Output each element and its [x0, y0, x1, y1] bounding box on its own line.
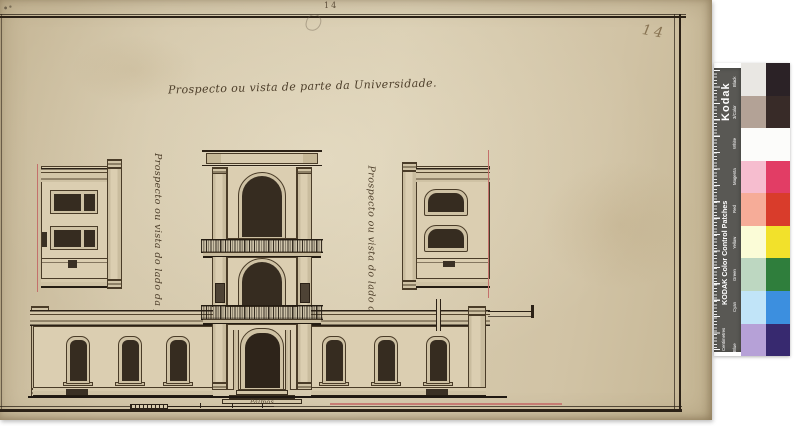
patch-full — [766, 63, 791, 96]
scale-label: Palmos — [250, 399, 274, 406]
red-ground-line — [330, 403, 562, 405]
right-wing-window — [426, 336, 450, 384]
patch-full — [766, 161, 791, 194]
window-pane — [70, 340, 87, 381]
scanned-sheet: 14 14 Prospecto ou vista de parte da Uni… — [0, 0, 800, 426]
patch-row-label: Black — [733, 68, 741, 96]
tower-upper-arched-window — [238, 172, 286, 239]
right-wing-cornice — [311, 310, 490, 326]
lower-balcony-railing — [201, 305, 323, 320]
patch-tint — [741, 63, 766, 96]
patch-row-label: White — [733, 128, 741, 160]
tower-middle-arched-window — [238, 258, 286, 307]
right-wing-window — [374, 336, 398, 384]
right-elevation-caption: Prospecto ou vista do lado do Sul. — [366, 166, 377, 296]
left-wing-window — [166, 336, 190, 384]
window-pane — [430, 340, 447, 381]
left-wing-cornice — [30, 310, 213, 326]
window-pane — [428, 229, 464, 248]
scale-bar-hatched-segment — [130, 404, 168, 410]
left-section-window — [50, 190, 98, 214]
patch-row-cyan — [741, 291, 790, 324]
door-side-trim — [285, 330, 291, 390]
patch-row-white — [741, 128, 790, 161]
tower-cornice-bottom-line — [202, 165, 322, 166]
kodak-color-strip: Kodak KODAK Color Control Patches Centim… — [714, 63, 790, 356]
right-wing-basement-vent — [426, 389, 448, 395]
patch-full — [766, 226, 791, 259]
window-pane — [84, 194, 95, 211]
tower-entrance-door — [240, 328, 284, 390]
left-section-cornice — [41, 168, 113, 182]
pilaster-base — [402, 280, 417, 290]
left-section-pilaster — [107, 159, 122, 289]
left-elevation-caption: Prospecto ou vista do lado da fachada. — [152, 153, 163, 288]
pilaster-base — [297, 382, 312, 390]
window-pane — [242, 176, 282, 237]
tower-pilaster — [297, 324, 312, 390]
patch-tint — [741, 96, 766, 129]
wall-extension-line — [488, 311, 534, 312]
left-section-red-line — [37, 164, 38, 292]
patch-row-3color — [741, 96, 790, 129]
patch-tint — [741, 324, 766, 357]
window-pane — [122, 340, 139, 381]
patch-full — [766, 128, 791, 161]
chimney-pipe — [436, 299, 441, 331]
right-section-cornice — [416, 168, 490, 182]
patch-row-black — [741, 63, 790, 96]
pilaster-capital — [212, 167, 227, 174]
patch-tint — [741, 291, 766, 324]
left-section-basement-vent — [68, 260, 77, 268]
patch-tint — [741, 128, 766, 161]
scale-tick — [232, 403, 233, 408]
tower-pilaster — [212, 324, 227, 390]
border-left-line — [1, 14, 2, 411]
left-section-wall-vent — [42, 232, 47, 247]
patch-row-green — [741, 258, 790, 291]
left-section-ledge-line — [42, 262, 112, 263]
right-section-basement-vent — [443, 261, 455, 267]
patch-row-magenta — [741, 161, 790, 194]
tower-cornice-top-line — [202, 150, 322, 152]
right-section-arched-window — [424, 189, 468, 216]
wall-extension-line — [488, 316, 534, 317]
left-section-base — [41, 278, 113, 288]
left-wing-basement-vent — [66, 389, 88, 395]
pilaster-panel — [300, 283, 310, 303]
patch-row-label: Cyan — [733, 292, 741, 322]
right-wing-corner-pilaster — [468, 306, 486, 397]
scale-tick — [200, 403, 201, 408]
patch-full — [766, 96, 791, 129]
window-pane — [378, 340, 395, 381]
right-wing-window — [322, 336, 346, 384]
left-section-ledge-line — [42, 258, 112, 259]
tower-pilaster — [297, 167, 312, 239]
border-right-thin-line — [674, 14, 675, 411]
kodak-ruler: Kodak KODAK Color Control Patches Centim… — [714, 68, 741, 352]
ruler-major-ticks — [714, 70, 720, 350]
patch-tint — [741, 193, 766, 226]
window-pane — [170, 340, 187, 381]
tower-pilaster — [212, 167, 227, 239]
border-bottom-thin-line — [0, 406, 682, 407]
left-wing-window — [118, 336, 142, 384]
pilaster-base — [107, 279, 122, 289]
wall-extension-post — [531, 305, 534, 318]
patch-row-yellow — [741, 226, 790, 259]
patch-full — [766, 291, 791, 324]
patch-full — [766, 193, 791, 226]
patch-row-red — [741, 193, 790, 226]
patch-row-label: 3/Color — [733, 96, 741, 128]
right-section-pilaster — [402, 162, 417, 290]
right-section-base — [416, 278, 490, 288]
border-top-thin-line — [0, 14, 686, 15]
patch-tint — [741, 258, 766, 291]
patch-row-label: Magenta — [733, 160, 741, 193]
border-top-line — [0, 16, 686, 18]
patch-row-label: Red — [733, 193, 741, 226]
door-pane — [245, 333, 280, 388]
window-pane — [84, 230, 95, 247]
pilaster-base — [212, 382, 227, 390]
left-section-window — [50, 226, 98, 250]
window-pane — [54, 194, 81, 211]
right-section-red-line — [488, 150, 489, 298]
right-section-ledge-line — [417, 258, 489, 259]
left-wing-window — [66, 336, 90, 384]
border-right-line — [679, 14, 681, 411]
pilaster-panel — [215, 283, 225, 303]
door-side-trim — [233, 330, 239, 390]
patch-full — [766, 324, 791, 357]
kodak-patches — [741, 63, 790, 356]
window-pane — [242, 262, 282, 305]
right-section-arched-window — [424, 225, 468, 252]
pilaster-capital — [402, 162, 417, 172]
patch-row-label: Green — [733, 259, 741, 292]
pilaster-capital — [107, 159, 122, 169]
ruler-unit-label: Centimetres — [722, 324, 730, 354]
pilaster-capital — [468, 306, 486, 316]
printed-folio-number: 14 — [324, 1, 338, 10]
pilaster-capital — [297, 167, 312, 174]
tower-frieze — [206, 153, 318, 164]
window-pane — [54, 230, 81, 247]
window-pane — [326, 340, 343, 381]
window-pane — [428, 193, 464, 212]
border-bottom-line — [0, 409, 682, 412]
patch-tint — [741, 161, 766, 194]
patch-row-blue — [741, 324, 790, 357]
patch-row-label: Yellow — [733, 226, 741, 259]
upper-balcony-railing — [201, 239, 323, 253]
patch-tint — [741, 226, 766, 259]
patch-full — [766, 258, 791, 291]
